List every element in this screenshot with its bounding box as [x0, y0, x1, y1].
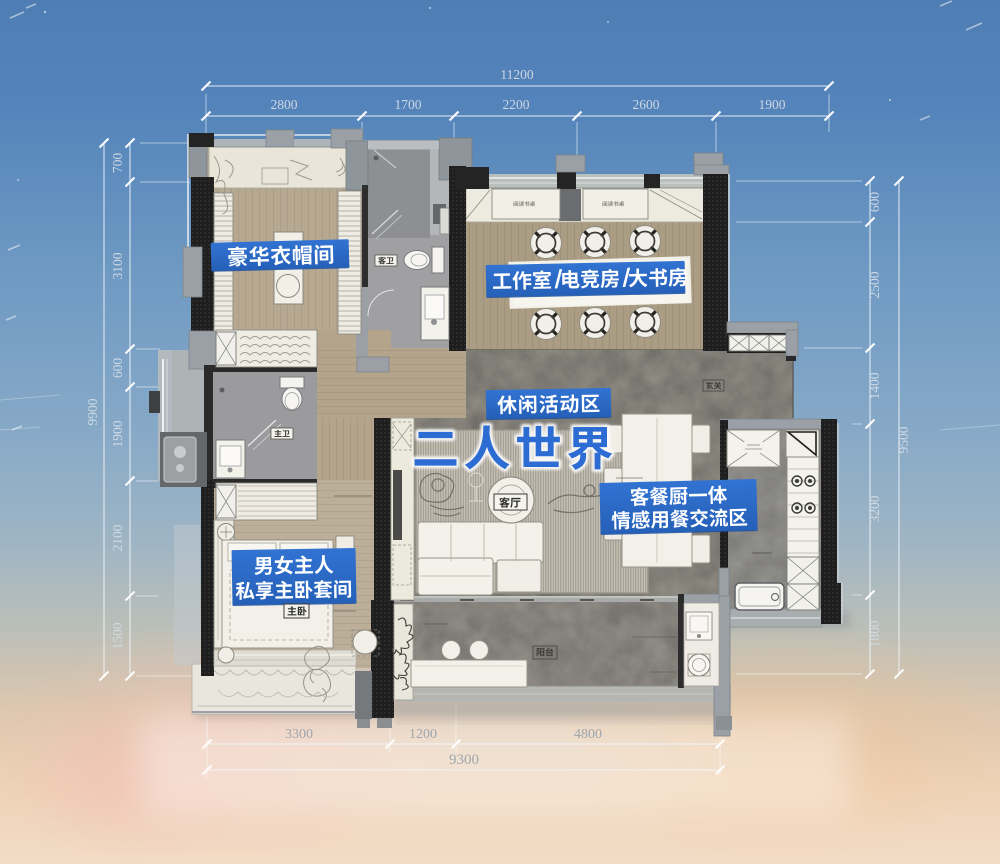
svg-text:1900: 1900 [110, 420, 125, 447]
svg-text:9300: 9300 [449, 752, 479, 768]
svg-text:700: 700 [110, 153, 125, 174]
svg-text:11200: 11200 [500, 67, 533, 82]
svg-text:3200: 3200 [867, 495, 882, 522]
svg-text:3300: 3300 [285, 727, 313, 742]
svg-text:1800: 1800 [867, 620, 882, 647]
svg-text:4800: 4800 [574, 727, 602, 742]
svg-text:2500: 2500 [867, 271, 882, 298]
svg-text:3100: 3100 [110, 252, 125, 279]
svg-text:2800: 2800 [271, 97, 298, 112]
svg-text:1900: 1900 [759, 97, 786, 112]
svg-text:2600: 2600 [633, 97, 660, 112]
svg-text:9900: 9900 [85, 398, 100, 425]
svg-text:600: 600 [110, 358, 125, 379]
svg-text:2100: 2100 [110, 524, 125, 551]
svg-text:1400: 1400 [867, 372, 882, 399]
svg-text:1200: 1200 [409, 727, 437, 742]
svg-text:1700: 1700 [395, 97, 422, 112]
svg-text:600: 600 [867, 192, 882, 213]
svg-text:2200: 2200 [503, 97, 530, 112]
svg-text:9500: 9500 [896, 426, 911, 453]
svg-text:1500: 1500 [110, 622, 125, 649]
